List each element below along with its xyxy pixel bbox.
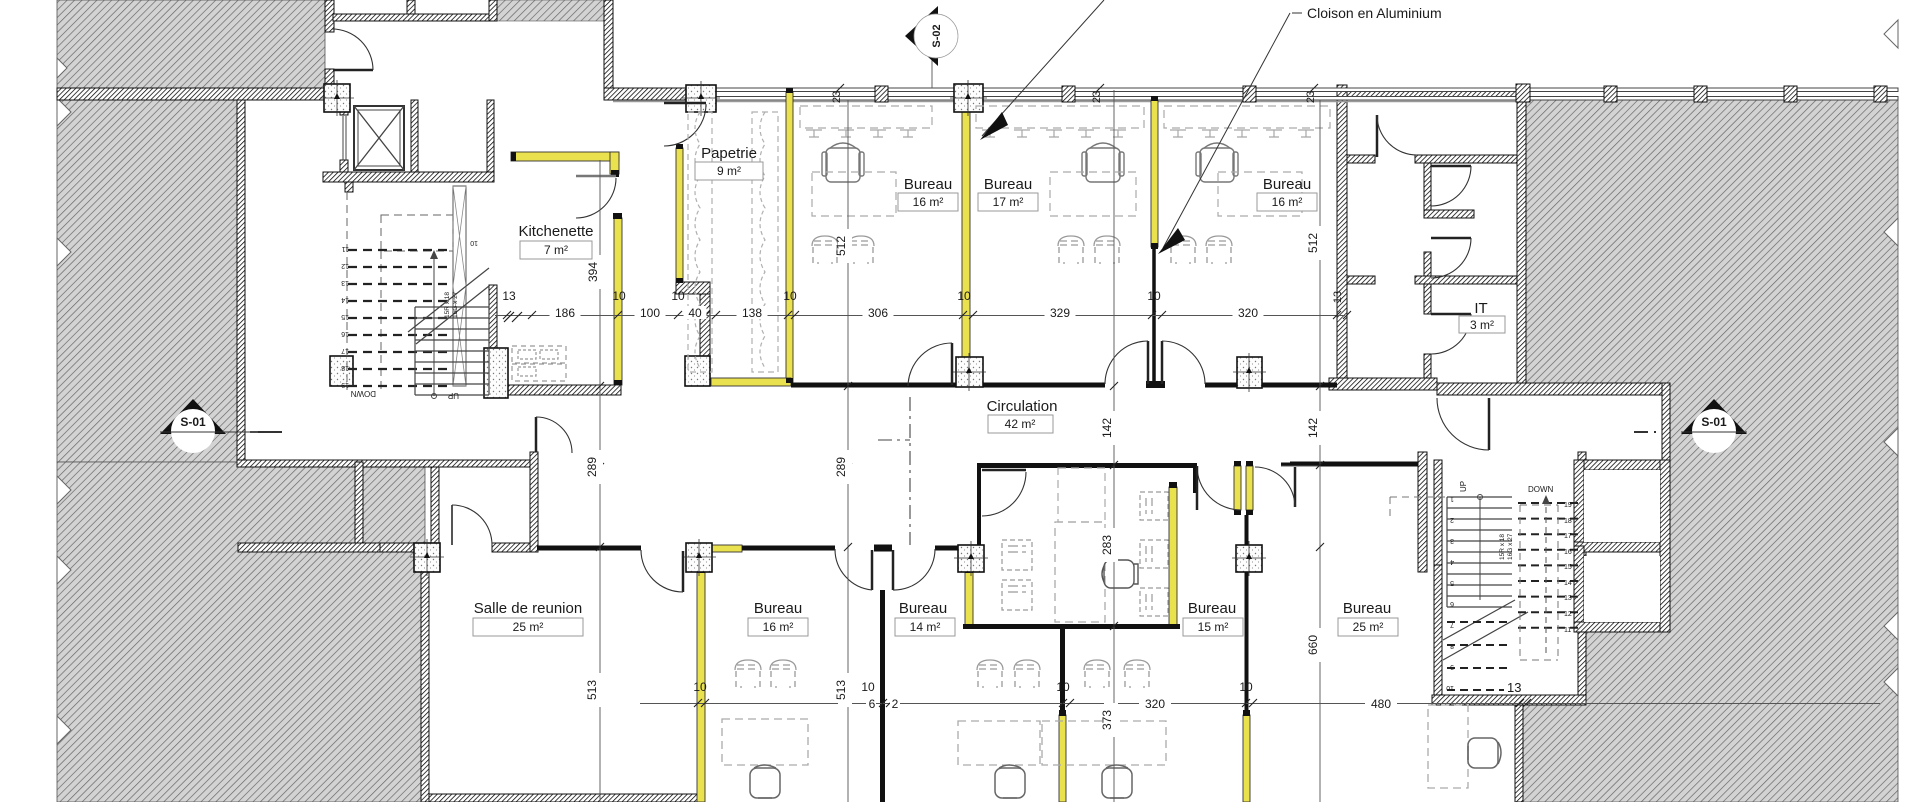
svg-text:23: 23 bbox=[831, 91, 843, 103]
svg-text:Kitchenette: Kitchenette bbox=[518, 223, 593, 240]
svg-text:19: 19 bbox=[1564, 502, 1572, 509]
svg-text:16 m²: 16 m² bbox=[763, 620, 794, 634]
svg-text:10: 10 bbox=[612, 289, 626, 303]
svg-text:17: 17 bbox=[1564, 533, 1572, 540]
svg-text:11: 11 bbox=[342, 245, 349, 252]
svg-text:3 m²: 3 m² bbox=[1470, 318, 1494, 332]
svg-text:289: 289 bbox=[585, 457, 599, 477]
svg-text:289: 289 bbox=[834, 457, 848, 477]
svg-text:10: 10 bbox=[861, 680, 875, 694]
svg-text:16: 16 bbox=[1564, 549, 1572, 556]
svg-text:17 m²: 17 m² bbox=[993, 195, 1024, 209]
svg-text:13: 13 bbox=[341, 279, 349, 286]
svg-text:Bureau: Bureau bbox=[984, 176, 1032, 193]
svg-text:7: 7 bbox=[1450, 621, 1454, 628]
svg-text:15: 15 bbox=[1564, 564, 1572, 571]
svg-text:142: 142 bbox=[1306, 418, 1320, 438]
svg-text:100: 100 bbox=[640, 306, 660, 320]
svg-text:DOWN: DOWN bbox=[350, 389, 376, 398]
svg-text:10: 10 bbox=[783, 289, 797, 303]
svg-text:306: 306 bbox=[868, 306, 888, 320]
svg-text:15 m²: 15 m² bbox=[1198, 620, 1229, 634]
svg-text:10: 10 bbox=[1147, 289, 1161, 303]
svg-text:16 m²: 16 m² bbox=[1272, 195, 1303, 209]
svg-text:320: 320 bbox=[1238, 306, 1258, 320]
svg-text:18: 18 bbox=[1564, 518, 1572, 525]
svg-text:8: 8 bbox=[1450, 642, 1454, 649]
svg-text:15R x 18: 15R x 18 bbox=[1499, 534, 1506, 560]
svg-text:512: 512 bbox=[1306, 233, 1320, 253]
svg-text:16: 16 bbox=[341, 330, 349, 337]
svg-text:2: 2 bbox=[1450, 516, 1454, 523]
svg-text:13: 13 bbox=[1564, 595, 1572, 602]
svg-text:10: 10 bbox=[693, 680, 707, 694]
svg-text:16G x 27: 16G x 27 bbox=[452, 291, 459, 318]
svg-text:17: 17 bbox=[341, 347, 349, 354]
svg-text:394: 394 bbox=[586, 262, 600, 282]
svg-text:10: 10 bbox=[671, 289, 685, 303]
svg-text:512: 512 bbox=[834, 236, 848, 256]
svg-text:Cloison en Aluminium: Cloison en Aluminium bbox=[1307, 5, 1442, 21]
svg-text:373: 373 bbox=[1100, 710, 1114, 730]
svg-text:S-01: S-01 bbox=[1701, 415, 1727, 429]
svg-text:Bureau: Bureau bbox=[1188, 600, 1236, 617]
svg-text:25 m²: 25 m² bbox=[1353, 620, 1384, 634]
svg-text:Bureau: Bureau bbox=[1343, 600, 1391, 617]
svg-text:UP: UP bbox=[448, 391, 459, 400]
svg-text:10: 10 bbox=[957, 289, 971, 303]
svg-text:660: 660 bbox=[1306, 635, 1320, 655]
svg-text:13: 13 bbox=[1332, 291, 1344, 303]
svg-text:Papetrie: Papetrie bbox=[701, 145, 757, 162]
svg-text:14: 14 bbox=[341, 296, 349, 303]
svg-text:DOWN: DOWN bbox=[1528, 485, 1554, 494]
svg-text:25 m²: 25 m² bbox=[513, 620, 544, 634]
svg-text:513: 513 bbox=[834, 680, 848, 700]
svg-text:9: 9 bbox=[1450, 663, 1454, 670]
svg-text:42 m²: 42 m² bbox=[1005, 417, 1036, 431]
svg-text:480: 480 bbox=[1371, 697, 1391, 711]
svg-text:1: 1 bbox=[1450, 495, 1454, 502]
svg-text:6: 6 bbox=[869, 697, 876, 711]
svg-text:16G x 27: 16G x 27 bbox=[1507, 533, 1514, 560]
svg-text:Bureau: Bureau bbox=[754, 600, 802, 617]
svg-text:186: 186 bbox=[555, 306, 575, 320]
svg-text:UP: UP bbox=[1459, 481, 1468, 492]
svg-text:6: 6 bbox=[1450, 600, 1454, 607]
svg-text:Circulation: Circulation bbox=[987, 398, 1058, 415]
svg-text:Bureau: Bureau bbox=[904, 176, 952, 193]
svg-text:16 m²: 16 m² bbox=[913, 195, 944, 209]
svg-text:19: 19 bbox=[341, 381, 349, 388]
svg-text:Bureau: Bureau bbox=[899, 600, 947, 617]
svg-text:10: 10 bbox=[470, 239, 478, 246]
svg-text:14 m²: 14 m² bbox=[910, 620, 941, 634]
svg-text:13: 13 bbox=[1507, 680, 1521, 695]
svg-text:IT: IT bbox=[1474, 300, 1487, 317]
svg-text:15R x 18: 15R x 18 bbox=[444, 292, 451, 318]
svg-text:S-01: S-01 bbox=[180, 415, 206, 429]
svg-text:10: 10 bbox=[1056, 680, 1070, 694]
svg-text:9 m²: 9 m² bbox=[717, 164, 741, 178]
svg-text:12: 12 bbox=[1564, 611, 1572, 618]
svg-text:15: 15 bbox=[341, 313, 349, 320]
svg-text:18: 18 bbox=[341, 364, 349, 371]
svg-text:S-02: S-02 bbox=[931, 24, 943, 47]
svg-text:7 m²: 7 m² bbox=[544, 243, 568, 257]
svg-text:11: 11 bbox=[1564, 627, 1571, 634]
svg-text:14: 14 bbox=[1564, 580, 1572, 587]
svg-text:329: 329 bbox=[1050, 306, 1070, 320]
svg-text:138: 138 bbox=[742, 306, 762, 320]
svg-text:513: 513 bbox=[585, 680, 599, 700]
svg-text:40: 40 bbox=[688, 306, 702, 320]
svg-text:5: 5 bbox=[1450, 579, 1454, 586]
svg-text:13: 13 bbox=[502, 289, 516, 303]
svg-text:283: 283 bbox=[1100, 535, 1114, 555]
svg-text:23: 23 bbox=[1091, 91, 1103, 103]
svg-text:2: 2 bbox=[892, 697, 899, 711]
svg-text:12: 12 bbox=[341, 262, 349, 269]
svg-text:4: 4 bbox=[1450, 558, 1454, 565]
svg-text:320: 320 bbox=[1145, 697, 1165, 711]
svg-text:3: 3 bbox=[1450, 537, 1454, 544]
svg-text:23: 23 bbox=[1305, 91, 1317, 103]
svg-text:Bureau: Bureau bbox=[1263, 176, 1311, 193]
svg-text:142: 142 bbox=[1100, 418, 1114, 438]
svg-text:10: 10 bbox=[1446, 684, 1454, 691]
svg-text:Salle de reunion: Salle de reunion bbox=[474, 600, 582, 617]
svg-text:10: 10 bbox=[1239, 680, 1253, 694]
